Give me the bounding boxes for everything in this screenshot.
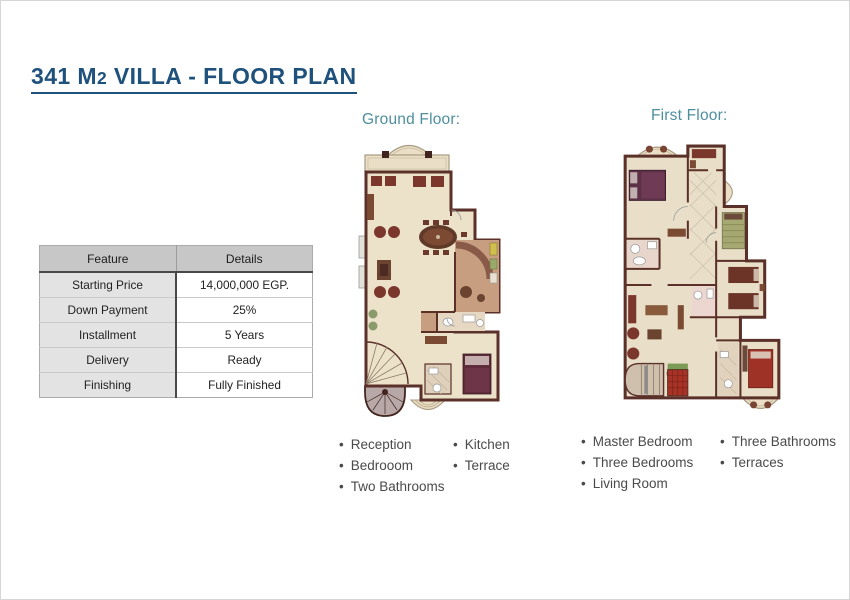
details-cell: 14,000,000 EGP. [176,272,313,298]
table-row: Starting Price 14,000,000 EGP. [40,272,313,298]
ground-floor-features-col2: Kitchen Terrace [453,434,510,476]
title-suffix: VILLA - FLOOR PLAN [107,63,357,89]
table-row: Finishing Fully Finished [40,373,313,398]
first-floor-features-col2: Three Bathrooms Terraces [720,431,836,473]
details-cell: Fully Finished [176,373,313,398]
feature-cell: Installment [40,323,177,348]
feature-cell: Finishing [40,373,177,398]
first-floor-features-col1: Master Bedroom Three Bedrooms Living Roo… [581,431,693,494]
details-cell: 25% [176,298,313,323]
list-item: Kitchen [453,434,510,455]
first-floor-label: First Floor: [651,107,727,125]
ground-floor-label: Ground Floor: [362,111,460,129]
list-item: Two Bathrooms [339,476,445,497]
feature-cell: Delivery [40,348,177,373]
first-floor-plan-image [611,136,793,423]
list-item: Three Bathrooms [720,431,836,452]
title-superscript: 2 [97,68,107,88]
list-item: Three Bedrooms [581,452,693,473]
list-item: Terrace [453,455,510,476]
page-title: 341 M2 VILLA - FLOOR PLAN [31,63,357,94]
title-prefix: 341 M [31,63,97,89]
pricing-table: Feature Details Starting Price 14,000,00… [39,245,313,398]
list-item: Bedrooom [339,455,445,476]
feature-cell: Down Payment [40,298,177,323]
table-row: Installment 5 Years [40,323,313,348]
table-row: Delivery Ready [40,348,313,373]
details-cell: 5 Years [176,323,313,348]
table-header-row: Feature Details [40,246,313,273]
table-header-details: Details [176,246,313,273]
list-item: Terraces [720,452,836,473]
list-item: Master Bedroom [581,431,693,452]
list-item: Living Room [581,473,693,494]
list-item: Reception [339,434,445,455]
table-header-feature: Feature [40,246,177,273]
ground-floor-features-col1: Reception Bedrooom Two Bathrooms [339,434,445,497]
details-cell: Ready [176,348,313,373]
feature-cell: Starting Price [40,272,177,298]
table-row: Down Payment 25% [40,298,313,323]
page: 341 M2 VILLA - FLOOR PLAN Feature Detail… [0,0,850,600]
ground-floor-plan-image [353,140,503,419]
